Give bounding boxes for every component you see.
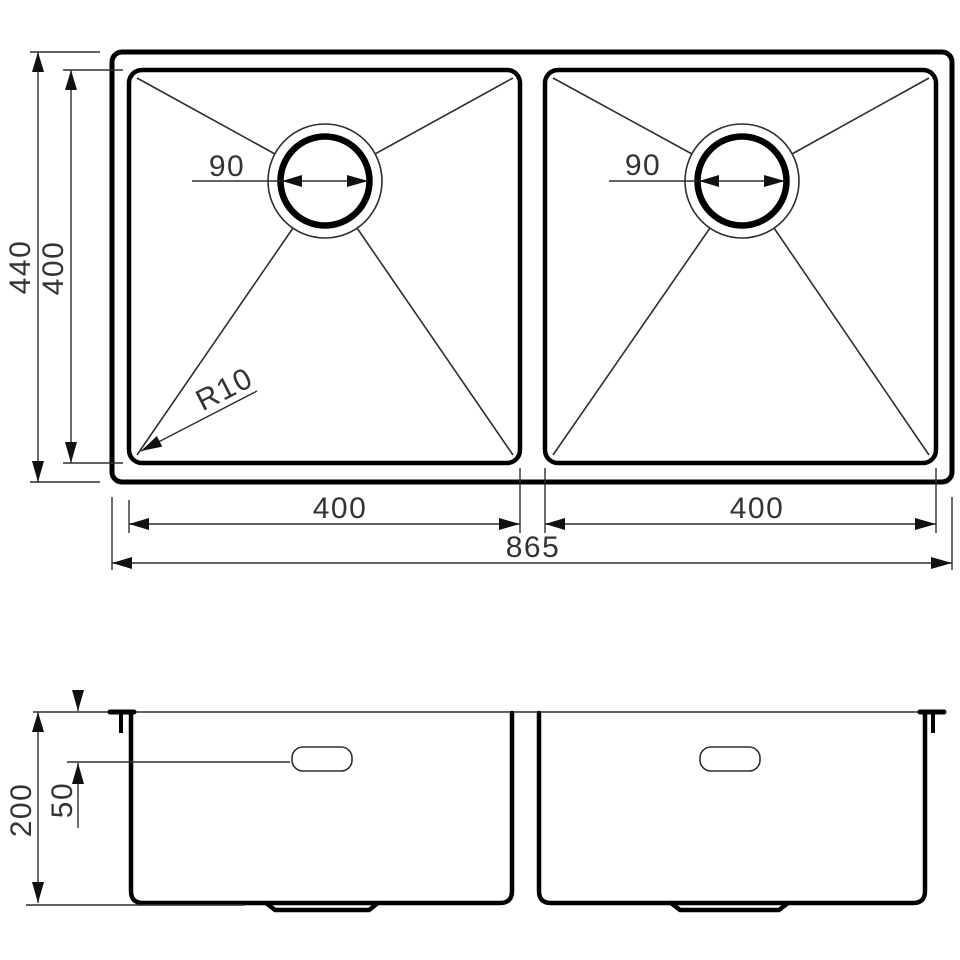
- dim-bowl-depth: 400: [37, 70, 71, 463]
- slope-line: [792, 78, 929, 154]
- side-view: 200 50: [5, 691, 944, 910]
- dim-label-overall-width: 865: [506, 531, 561, 564]
- right-overflow-hole: [700, 747, 760, 771]
- dim-label-corner-radius: R10: [191, 361, 259, 417]
- extension-lines-top-view: [30, 52, 952, 570]
- dim-label-right-drain: 90: [625, 149, 661, 182]
- dim-label-bowl-height: 200: [5, 783, 38, 838]
- dim-overall-width: 865: [112, 531, 952, 564]
- dim-left-bowl-width: 400: [129, 492, 520, 525]
- sink-outer-rim: [112, 52, 952, 482]
- left-bowl-profile: [131, 713, 512, 903]
- dim-label-right-bowl-width: 400: [730, 492, 785, 525]
- right-bowl: [545, 70, 936, 463]
- dim-right-bowl-width: 400: [545, 492, 936, 525]
- dim-label-left-bowl-width: 400: [313, 492, 368, 525]
- slope-line: [774, 228, 929, 455]
- slope-line: [357, 228, 513, 455]
- dim-label-left-drain: 90: [209, 150, 245, 183]
- drawing-canvas: 90 90 R10 440: [0, 0, 960, 960]
- right-bowl-profile: [539, 713, 925, 903]
- slope-line: [137, 78, 275, 154]
- sink-technical-drawing: 90 90 R10 440: [0, 0, 960, 960]
- slope-line: [553, 228, 710, 455]
- slope-line: [553, 78, 692, 154]
- top-view: 90 90 R10 440: [4, 52, 952, 570]
- dim-bowl-height: 200: [5, 712, 38, 903]
- slope-line: [137, 228, 293, 455]
- dim-label-overall-depth: 440: [4, 240, 37, 295]
- dim-label-bowl-depth: 400: [37, 241, 70, 296]
- slope-line: [375, 78, 513, 154]
- dim-corner-radius: R10: [141, 361, 259, 451]
- left-overflow-hole: [292, 747, 352, 771]
- dim-overall-depth: 440: [4, 52, 38, 482]
- dim-label-overflow-offset: 50: [46, 782, 79, 818]
- left-bowl: [129, 70, 520, 463]
